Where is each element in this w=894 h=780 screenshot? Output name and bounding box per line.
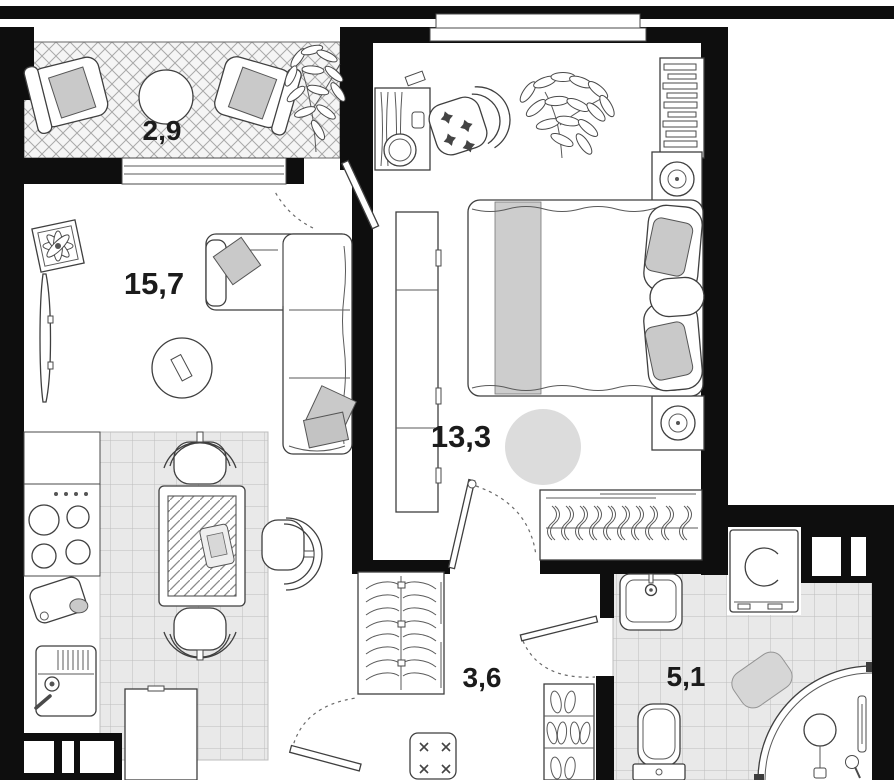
potted-plant (32, 220, 84, 272)
wall-living-bedroom (352, 168, 373, 572)
coffee-table (152, 338, 212, 398)
doormat (410, 733, 456, 779)
bookshelf (660, 58, 704, 158)
tv (40, 274, 53, 402)
floor-plan: 2,9 15,7 13,3 3,6 5,1 (0, 0, 894, 780)
bed (468, 200, 705, 396)
shower-head (804, 714, 836, 746)
entrance-door (290, 698, 361, 771)
bedroom-wardrobe (540, 490, 702, 560)
kitchen-window-pane (80, 741, 114, 773)
sofa (206, 234, 356, 454)
bathroom-sink (620, 574, 682, 630)
wall-left (0, 27, 24, 733)
bathroom-door (520, 616, 597, 677)
bedroom-rug (505, 409, 581, 485)
kitchen-window-pane (62, 741, 74, 773)
bedroom-door (449, 480, 536, 569)
speaker (652, 152, 702, 206)
wall-bath-left-lower (596, 676, 614, 780)
fridge (125, 686, 197, 780)
balcony-window (122, 158, 286, 184)
cutting-board (28, 574, 92, 629)
room-label-hallway: 3,6 (463, 662, 502, 693)
shoe-cabinet (544, 684, 594, 780)
wall-neighbor-bottom (727, 505, 894, 527)
kitchen-window-pane (24, 741, 54, 773)
toilet (633, 704, 685, 780)
desk-chair (423, 79, 518, 164)
dresser (396, 212, 441, 512)
washing-machine (730, 530, 798, 612)
speaker (652, 396, 704, 450)
wall-balcony-left (24, 158, 122, 184)
wall-right-lower (872, 583, 894, 780)
wall-bath-left-upper (600, 574, 614, 618)
adjacent-area (728, 27, 894, 503)
dining-chair (262, 518, 322, 590)
hall-wardrobe (358, 572, 444, 694)
room-label-bathroom: 5,1 (667, 661, 706, 692)
bedroom-window (430, 14, 646, 41)
room-label-balcony: 2,9 (143, 115, 182, 146)
kitchen-counter (24, 432, 100, 484)
stove (24, 484, 100, 576)
kitchen-sink (36, 646, 96, 716)
wall-right-divider (701, 27, 728, 575)
wall-hall-top-b (540, 560, 710, 574)
wall-balcony-right (286, 158, 304, 184)
dining-table (159, 486, 245, 606)
room-label-living: 15,7 (124, 266, 184, 301)
shower-mixer (846, 756, 859, 769)
bedroom (375, 58, 705, 560)
bedroom-plant (517, 73, 616, 159)
duct-opening (812, 537, 841, 576)
duct-opening (851, 537, 866, 576)
living-room (32, 220, 356, 454)
room-label-bedroom: 13,3 (431, 419, 491, 454)
